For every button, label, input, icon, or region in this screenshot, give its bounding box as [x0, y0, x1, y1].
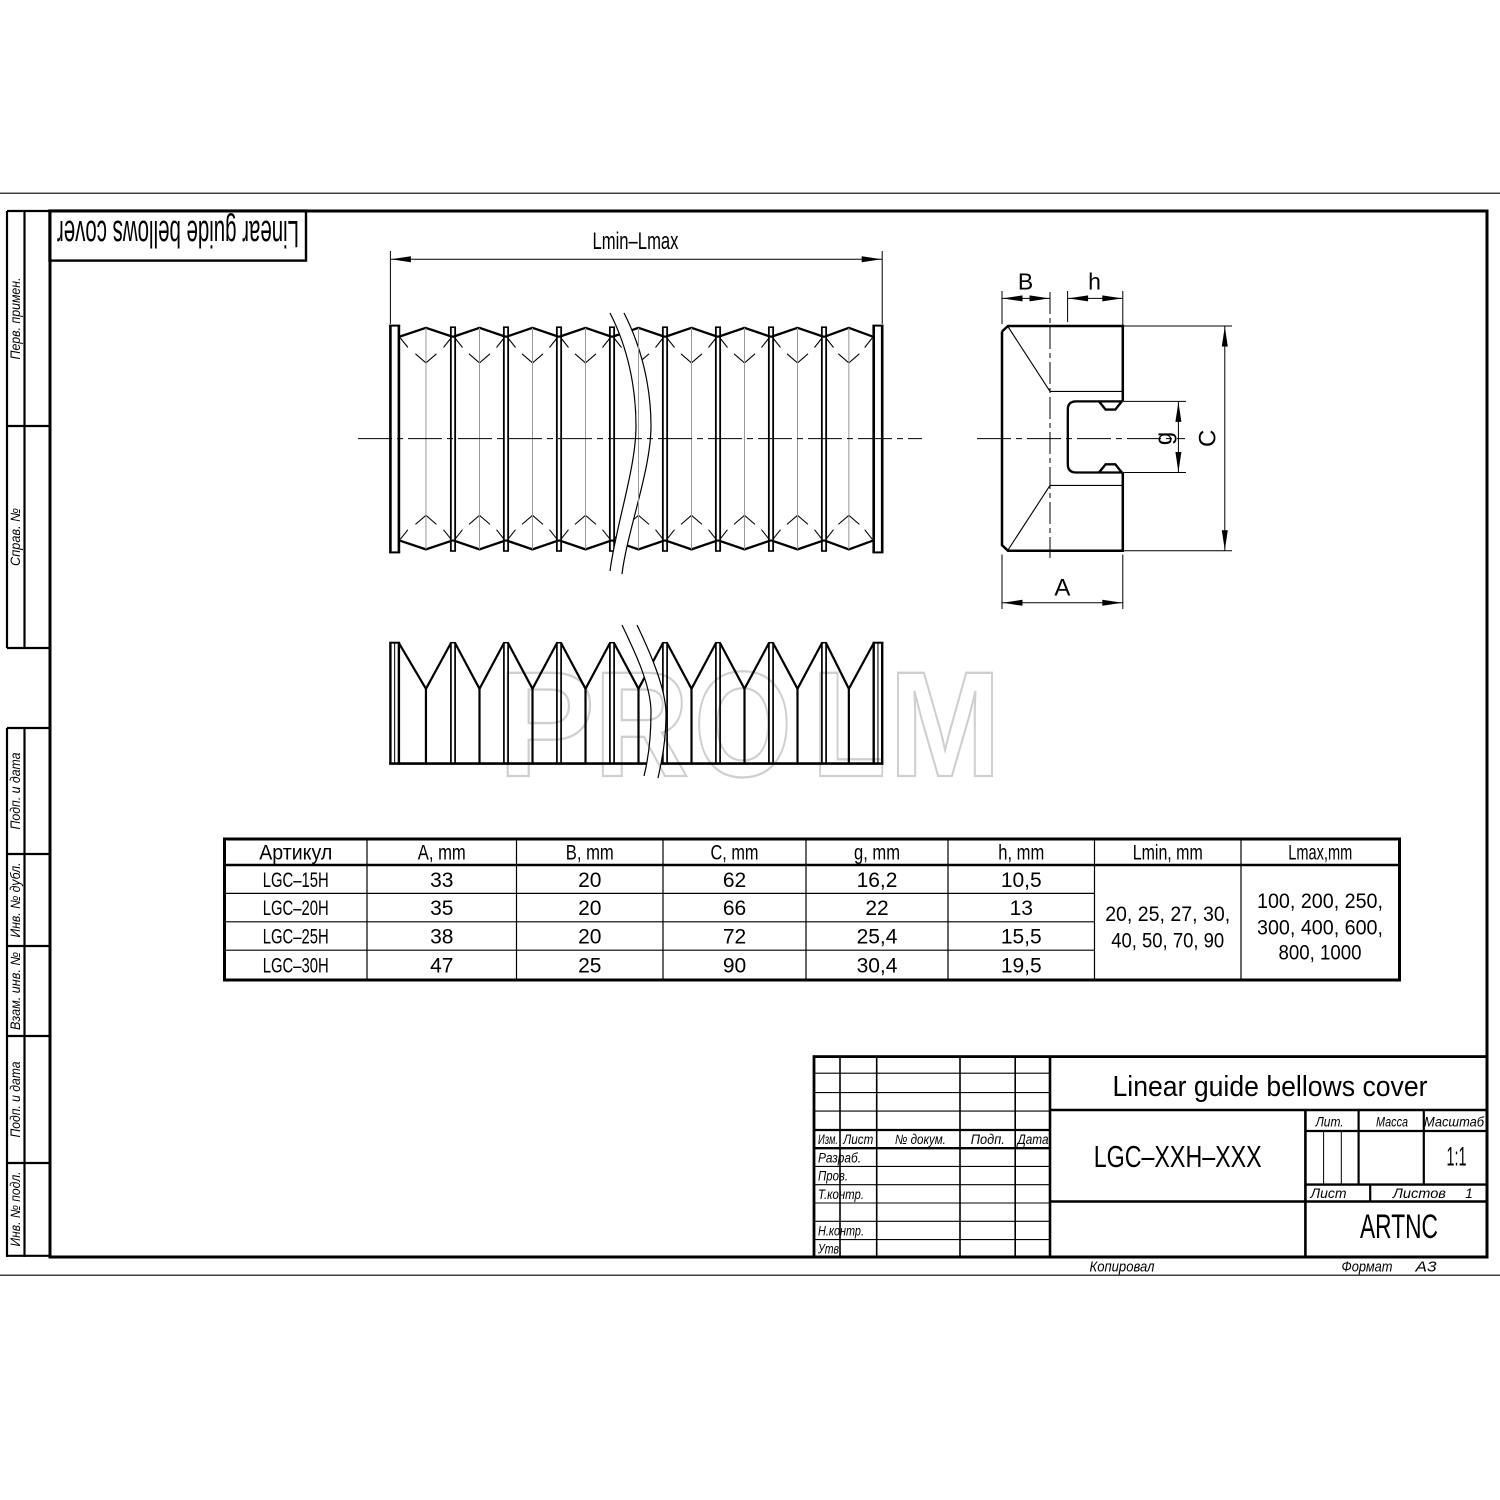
svg-text:Дата: Дата: [1016, 1132, 1049, 1147]
svg-text:25,4: 25,4: [857, 926, 898, 949]
svg-text:Lmin–Lmax: Lmin–Lmax: [593, 228, 679, 255]
svg-text:90: 90: [723, 954, 746, 977]
svg-text:Масштаб: Масштаб: [1424, 1115, 1484, 1130]
svg-text:Справ. №: Справ. №: [8, 508, 23, 566]
svg-text:Утв.: Утв.: [817, 1242, 842, 1257]
svg-text:Lmax,mm: Lmax,mm: [1288, 842, 1352, 865]
svg-text:№ докум.: № докум.: [895, 1132, 946, 1147]
svg-text:B: B: [1018, 269, 1033, 295]
svg-text:A: A: [1054, 575, 1070, 602]
svg-text:Масса: Масса: [1376, 1115, 1408, 1130]
svg-text:20: 20: [578, 869, 601, 892]
svg-text:Лист: Лист: [842, 1132, 873, 1147]
svg-text:Подп.: Подп.: [971, 1132, 1005, 1147]
svg-text:LGC–20H: LGC–20H: [263, 897, 329, 920]
svg-text:22: 22: [865, 897, 888, 920]
svg-text:LGC–XXH–XXX: LGC–XXH–XXX: [1094, 1139, 1262, 1174]
svg-text:h, mm: h, mm: [998, 842, 1044, 865]
svg-text:Lmin, mm: Lmin, mm: [1133, 842, 1203, 865]
svg-text:LGC–30H: LGC–30H: [263, 954, 329, 977]
svg-text:10,5: 10,5: [1001, 869, 1042, 892]
svg-text:g, mm: g, mm: [854, 842, 900, 865]
svg-text:Листов: Листов: [1392, 1186, 1446, 1201]
svg-text:Формат: Формат: [1342, 1259, 1393, 1276]
svg-text:Подп. и дата: Подп. и дата: [8, 752, 23, 829]
svg-text:20, 25, 27, 30,: 20, 25, 27, 30,: [1105, 903, 1230, 926]
svg-text:62: 62: [723, 869, 746, 892]
svg-text:LGC–15H: LGC–15H: [263, 869, 329, 892]
svg-text:Изм.: Изм.: [818, 1132, 838, 1147]
svg-text:Лист: Лист: [1309, 1186, 1346, 1201]
svg-text:Лит.: Лит.: [1315, 1115, 1344, 1130]
svg-text:Копировал: Копировал: [1090, 1259, 1155, 1276]
svg-text:15,5: 15,5: [1001, 926, 1042, 949]
svg-text:66: 66: [723, 897, 746, 920]
svg-text:P: P: [498, 640, 595, 808]
svg-text:Инв. № дубл.: Инв. № дубл.: [8, 863, 23, 938]
svg-text:Linear guide bellows cover: Linear guide bellows cover: [1113, 1071, 1428, 1103]
svg-text:47: 47: [430, 954, 453, 977]
svg-text:Linear guide bellows cover: Linear guide bellows cover: [57, 212, 299, 254]
svg-text:h: h: [1088, 269, 1101, 295]
svg-text:38: 38: [430, 926, 453, 949]
svg-text:Артикул: Артикул: [259, 842, 332, 865]
svg-text:O: O: [694, 640, 792, 808]
svg-text:B, mm: B, mm: [566, 842, 614, 865]
svg-text:Инв. № подл.: Инв. № подл.: [8, 1172, 23, 1247]
svg-text:А3: А3: [1414, 1259, 1437, 1276]
svg-text:C: C: [1195, 430, 1222, 447]
svg-text:100, 200, 250,: 100, 200, 250,: [1257, 890, 1383, 913]
svg-text:35: 35: [430, 897, 453, 920]
svg-text:Пров.: Пров.: [818, 1169, 848, 1184]
svg-text:1: 1: [1465, 1186, 1473, 1201]
svg-text:Перв. примен.: Перв. примен.: [8, 278, 23, 360]
svg-text:LGC–25H: LGC–25H: [263, 926, 329, 949]
svg-text:20: 20: [578, 926, 601, 949]
svg-text:Взам. инв. №: Взам. инв. №: [8, 952, 23, 1030]
svg-text:40, 50, 70, 90: 40, 50, 70, 90: [1111, 930, 1224, 953]
svg-text:19,5: 19,5: [1001, 954, 1042, 977]
svg-text:300, 400, 600,: 300, 400, 600,: [1257, 917, 1383, 940]
svg-text:ARTNC: ARTNC: [1360, 1208, 1438, 1246]
svg-text:Н.контр.: Н.контр.: [818, 1224, 864, 1239]
svg-text:M: M: [889, 640, 1001, 808]
svg-text:25: 25: [578, 954, 601, 977]
svg-text:800, 1000: 800, 1000: [1279, 942, 1362, 965]
svg-text:72: 72: [723, 926, 746, 949]
svg-text:33: 33: [430, 869, 453, 892]
svg-text:Т.контр.: Т.контр.: [818, 1187, 864, 1202]
svg-text:A, mm: A, mm: [418, 842, 466, 865]
svg-text:Подп. и дата: Подп. и дата: [8, 1061, 23, 1137]
svg-text:20: 20: [578, 897, 601, 920]
svg-text:13: 13: [1010, 897, 1033, 920]
svg-text:16,2: 16,2: [857, 869, 898, 892]
svg-text:30,4: 30,4: [857, 954, 898, 977]
svg-text:g: g: [1151, 432, 1178, 445]
svg-text:C, mm: C, mm: [711, 842, 759, 865]
svg-text:Разраб.: Разраб.: [818, 1151, 861, 1166]
svg-text:1:1: 1:1: [1447, 1142, 1467, 1172]
